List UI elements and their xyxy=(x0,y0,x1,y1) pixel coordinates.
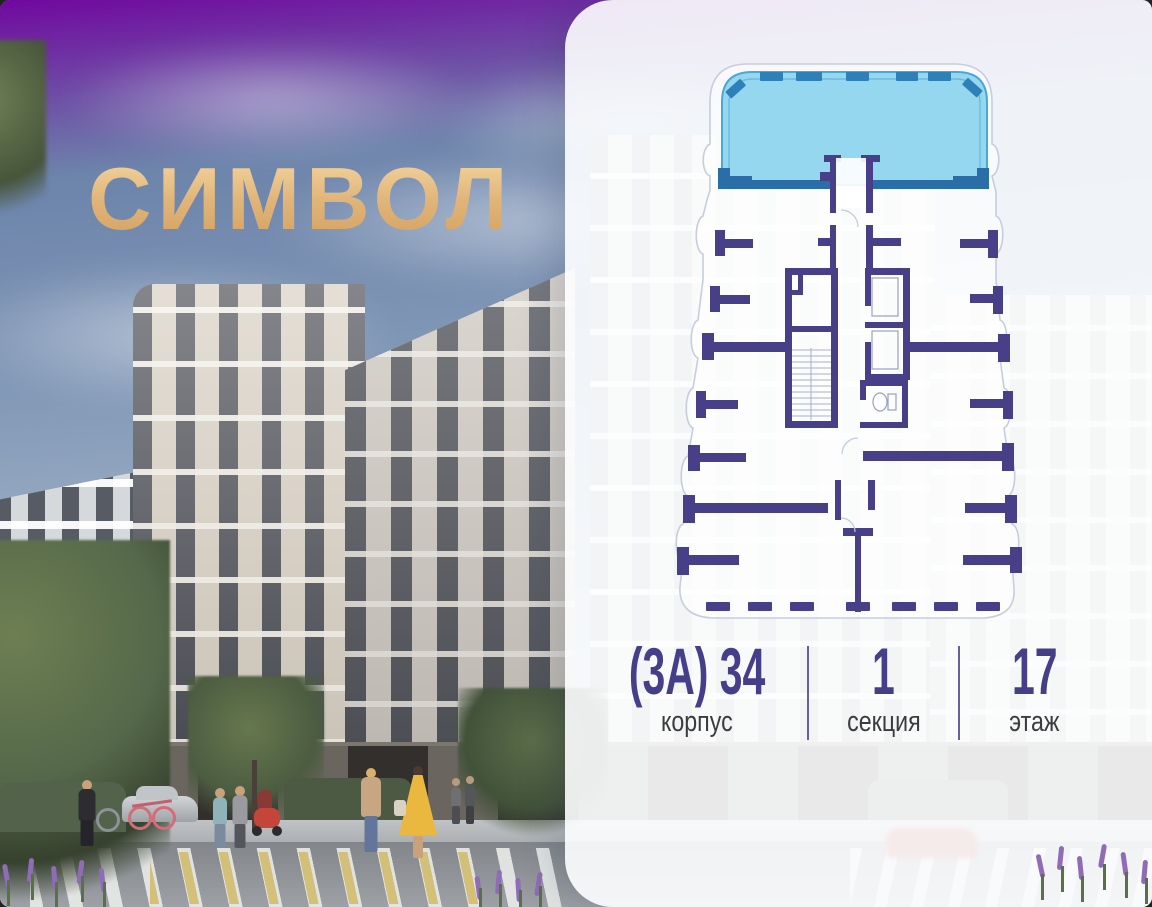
detail-panel: (3А) 34 корпус 1 секция 17 этаж xyxy=(565,0,1152,907)
pedestrian-yellow-dress xyxy=(398,766,438,862)
pedestrian xyxy=(78,780,96,846)
pedestrian xyxy=(232,786,248,848)
corpus-value: (3А) 34 xyxy=(629,640,765,702)
bicycle xyxy=(152,806,176,830)
unit-info-bar: (3А) 34 корпус 1 секция 17 этаж xyxy=(587,640,1109,748)
scooter xyxy=(250,790,284,836)
core-corridor xyxy=(836,158,866,208)
pedestrian xyxy=(450,778,462,826)
cloud xyxy=(60,40,480,160)
floor-label: этаж xyxy=(1009,706,1059,739)
bicycle xyxy=(128,806,152,830)
flowers-foreground xyxy=(1030,840,1152,907)
floor-info: 17 этаж xyxy=(960,640,1109,748)
hedge xyxy=(284,778,412,820)
screenshot-root: СИМВОЛ xyxy=(0,0,1152,907)
flowers xyxy=(0,856,124,907)
brand-logo: СИМВОЛ xyxy=(88,148,508,248)
tree xyxy=(0,540,170,907)
corpus-info: (3А) 34 корпус xyxy=(587,640,807,748)
section-value: 1 xyxy=(872,640,895,702)
bicycle xyxy=(96,808,120,832)
floor-plan xyxy=(640,50,1060,635)
pedestrian xyxy=(464,776,476,826)
flowers xyxy=(470,866,560,907)
section-label: секция xyxy=(847,706,920,739)
pedestrian xyxy=(360,768,382,860)
tree xyxy=(0,40,46,240)
pedestrian xyxy=(212,788,228,848)
floor-value: 17 xyxy=(1012,640,1058,702)
corpus-label: корпус xyxy=(661,706,733,739)
section-info: 1 секция xyxy=(809,640,958,748)
bottom-window-dashes xyxy=(706,602,1000,611)
